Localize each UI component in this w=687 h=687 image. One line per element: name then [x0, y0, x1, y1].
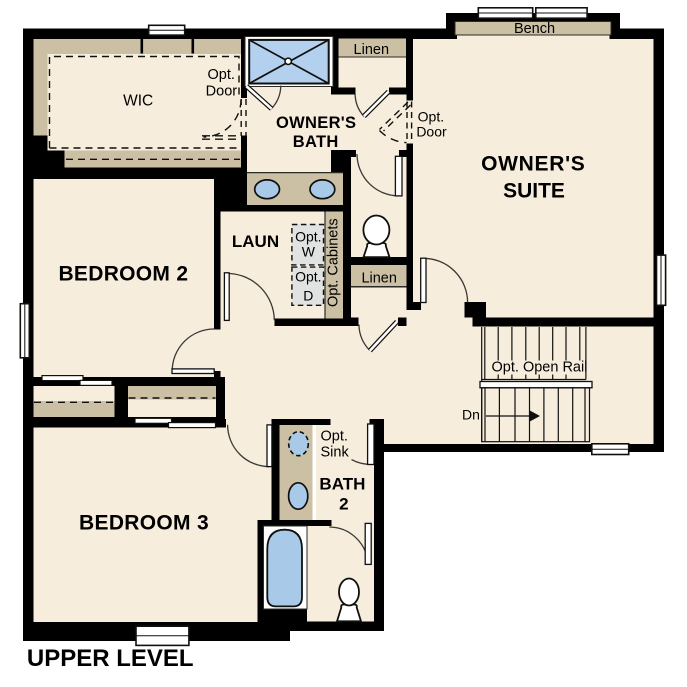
svg-text:Door: Door: [206, 84, 238, 100]
svg-text:OWNER'S: OWNER'S: [481, 153, 585, 176]
svg-text:BATH: BATH: [319, 475, 365, 494]
svg-text:Opt.: Opt.: [321, 429, 348, 445]
svg-text:Opt.: Opt.: [207, 67, 234, 83]
svg-text:BEDROOM 3: BEDROOM 3: [79, 512, 209, 535]
svg-text:W: W: [302, 244, 316, 260]
svg-text:LAUN: LAUN: [232, 232, 279, 251]
svg-text:Bench: Bench: [514, 21, 555, 37]
svg-text:Linen: Linen: [361, 270, 396, 286]
svg-text:Linen: Linen: [354, 42, 389, 58]
svg-text:Opt. Open Rail: Opt. Open Rail: [492, 359, 588, 375]
svg-text:SUITE: SUITE: [503, 179, 565, 202]
svg-text:BEDROOM 2: BEDROOM 2: [58, 263, 188, 286]
svg-text:Opt.: Opt.: [295, 229, 321, 245]
svg-text:Dn: Dn: [462, 407, 480, 423]
svg-text:BATH: BATH: [293, 133, 339, 151]
svg-text:UPPER LEVEL: UPPER LEVEL: [27, 645, 194, 672]
svg-text:WIC: WIC: [123, 92, 153, 109]
svg-text:D: D: [303, 288, 313, 304]
svg-text:Opt.: Opt.: [418, 109, 444, 125]
svg-text:Opt.: Opt.: [295, 269, 321, 285]
svg-text:Opt. Cabinets: Opt. Cabinets: [326, 218, 342, 307]
svg-text:Door: Door: [416, 124, 447, 140]
svg-text:OWNER'S: OWNER'S: [276, 114, 356, 132]
svg-text:2: 2: [339, 494, 348, 513]
svg-text:Sink: Sink: [321, 444, 350, 460]
